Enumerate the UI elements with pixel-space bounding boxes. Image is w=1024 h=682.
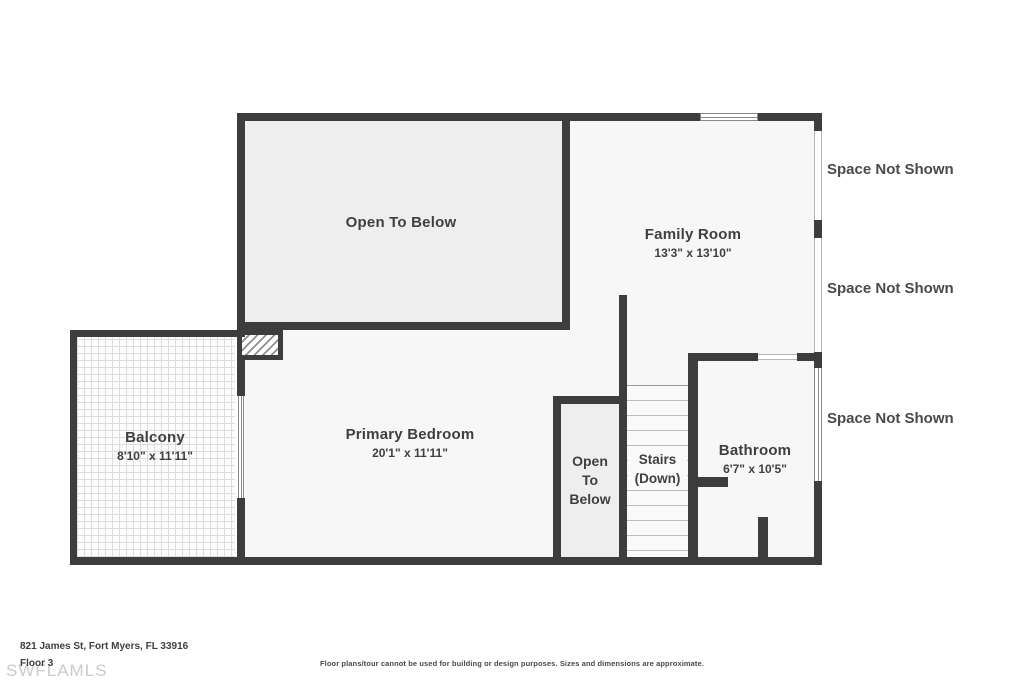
hatch-pattern (242, 335, 278, 355)
label-bathroom: Bathroom 6'7" x 10'5" (700, 442, 810, 477)
room-dims-bathroom: 6'7" x 10'5" (700, 462, 810, 477)
room-name-primary-bedroom: Primary Bedroom (310, 426, 510, 444)
wall-shaft-top (553, 396, 627, 404)
space-not-shown-note-1: Space Not Shown (827, 161, 954, 178)
wall-bathroom-left (688, 353, 698, 557)
wall-bathroom-top-stub (797, 353, 814, 361)
label-balcony: Balcony 8'10" x 11'11" (80, 429, 230, 464)
label-stairs: Stairs (Down) (628, 449, 687, 489)
floor-plan-canvas: Open To Below Family Room 13'3" x 13'10"… (0, 0, 1024, 682)
room-name-bathroom: Bathroom (700, 442, 810, 460)
wall-right-seg1 (814, 113, 822, 131)
room-name-open-to-below: Open To Below (301, 214, 501, 232)
property-address: 821 James St, Fort Myers, FL 33916 (20, 641, 188, 652)
label-primary-bedroom: Primary Bedroom 20'1" x 11'11" (310, 426, 510, 461)
label-open-to-below-main: Open To Below (301, 214, 501, 232)
wall-right-seg2 (814, 220, 822, 238)
disclaimer-text: Floor plans/tour cannot be used for buil… (0, 659, 1024, 668)
room-name-family-room: Family Room (593, 226, 793, 244)
room-dims-balcony: 8'10" x 11'11" (80, 449, 230, 464)
wall-right-seg3 (814, 352, 822, 368)
wall-right-open2 (814, 238, 822, 352)
wall-bathroom-partition-h (698, 477, 728, 487)
wall-left-mid (237, 356, 245, 396)
space-not-shown-note-2: Space Not Shown (827, 280, 954, 297)
balcony-slider-door (238, 396, 244, 498)
wall-bathroom-top (688, 353, 758, 361)
label-family-room: Family Room 13'3" x 13'10" (593, 226, 793, 261)
wall-left-upper (237, 113, 245, 337)
wall-balcony-top (70, 330, 245, 337)
room-name-balcony: Balcony (80, 429, 230, 447)
room-dims-family-room: 13'3" x 13'10" (593, 246, 793, 261)
wall-bottom (70, 557, 822, 565)
wall-right-open1 (814, 131, 822, 220)
label-open-to-below-shaft: Open To Below (561, 404, 619, 557)
wall-right-seg4 (814, 481, 822, 565)
space-not-shown-note-3: Space Not Shown (827, 410, 954, 427)
wall-shaft-left (553, 396, 561, 557)
wall-left-lower (237, 498, 245, 565)
wall-stairs-left (619, 295, 627, 557)
wall-bathroom-partition-v (758, 517, 768, 557)
bathroom-window (814, 368, 822, 481)
wall-balcony-left (70, 330, 77, 565)
room-dims-primary-bedroom: 20'1" x 11'11" (310, 446, 510, 461)
wall-open-to-below-right (562, 113, 570, 330)
top-wall-window (700, 113, 758, 121)
wall-open-to-below-bottom (237, 322, 570, 330)
